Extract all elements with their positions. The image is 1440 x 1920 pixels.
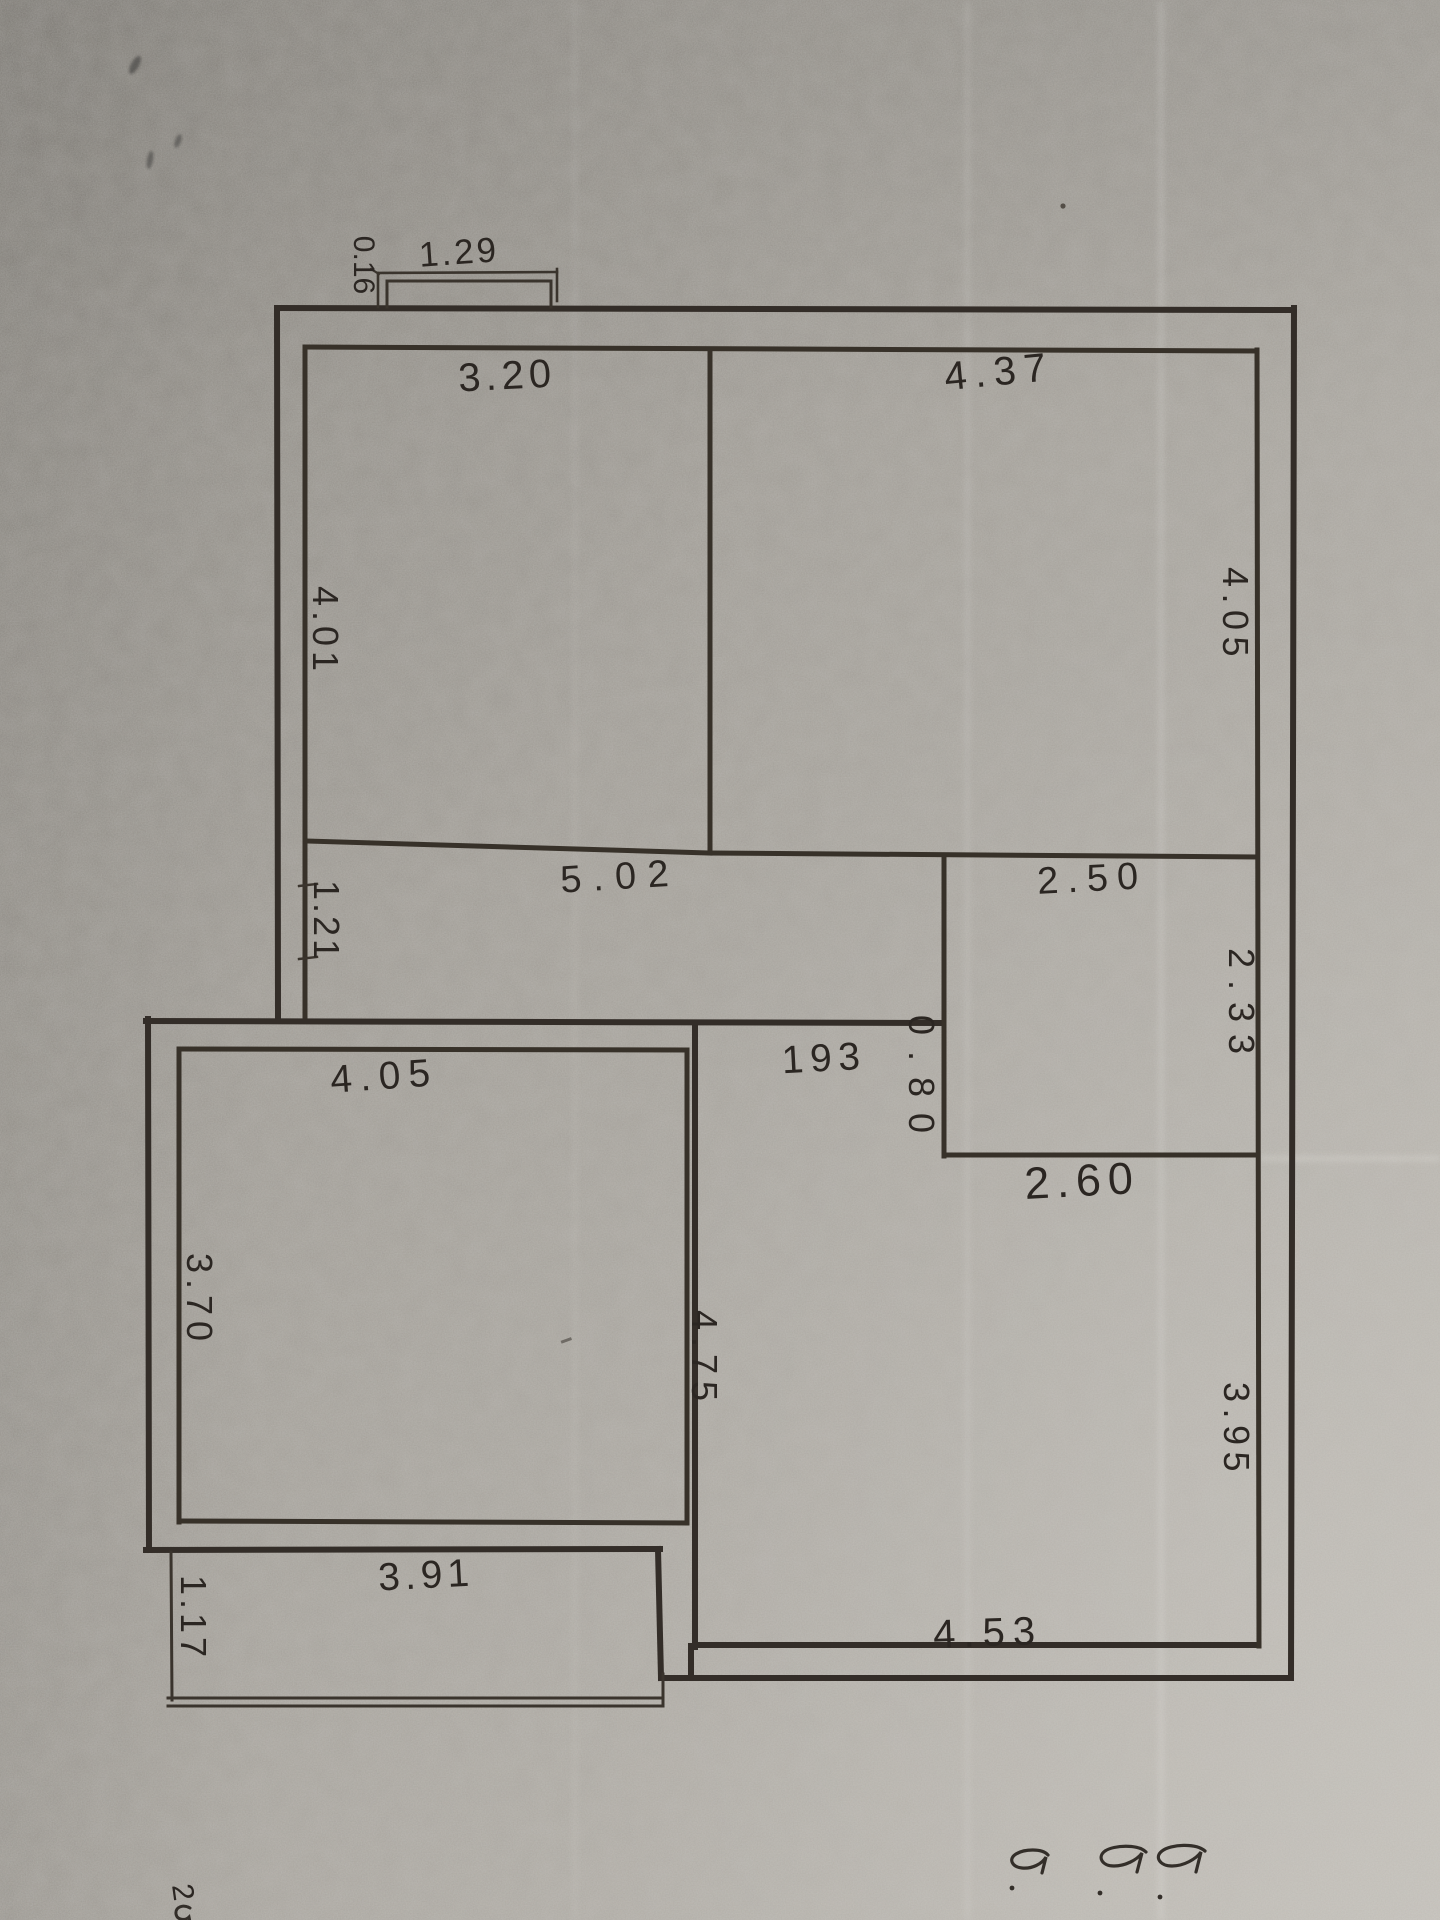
svg-text:3.91: 3.91 bbox=[377, 1552, 475, 1600]
svg-text:3.70: 3.70 bbox=[179, 1253, 220, 1347]
svg-text:1.29: 1.29 bbox=[418, 230, 501, 274]
svg-text:0.80: 0.80 bbox=[901, 1015, 942, 1149]
svg-text:4.53: 4.53 bbox=[932, 1609, 1043, 1657]
svg-text:0.16: 0.16 bbox=[347, 236, 380, 294]
svg-text:4.05: 4.05 bbox=[1215, 567, 1256, 663]
svg-text:4.01: 4.01 bbox=[305, 586, 346, 676]
svg-text:2.33: 2.33 bbox=[1221, 948, 1262, 1066]
svg-text:4.75: 4.75 bbox=[684, 1310, 725, 1408]
svg-text:5.02: 5.02 bbox=[559, 852, 681, 901]
svg-text:3.20: 3.20 bbox=[457, 351, 557, 400]
svg-text:1.17: 1.17 bbox=[173, 1575, 214, 1661]
svg-text:2.60: 2.60 bbox=[1023, 1152, 1141, 1209]
svg-text:4.05: 4.05 bbox=[329, 1051, 440, 1101]
svg-text:1.21: 1.21 bbox=[306, 880, 347, 962]
svg-text:3.95: 3.95 bbox=[1216, 1382, 1257, 1478]
svg-text:2.50: 2.50 bbox=[1036, 855, 1148, 903]
svg-text:193: 193 bbox=[781, 1035, 868, 1082]
